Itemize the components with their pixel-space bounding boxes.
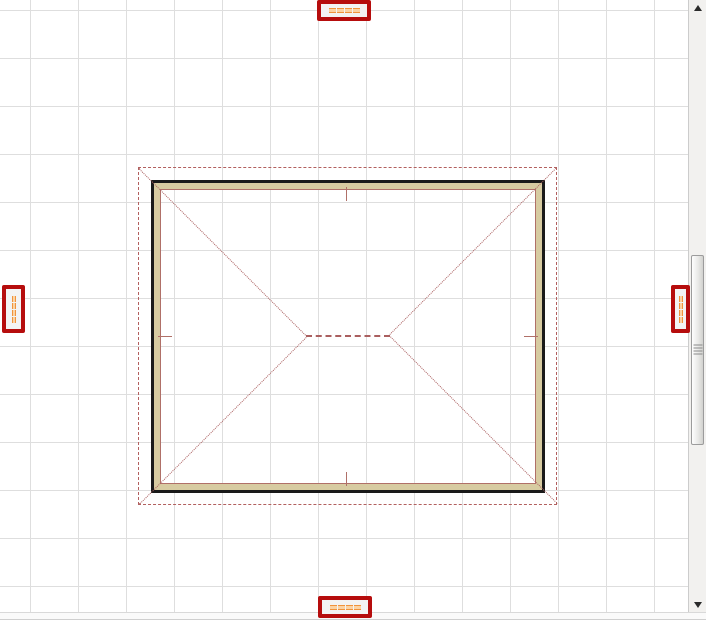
redacted-text-dash	[353, 8, 360, 13]
scrollbar-thumb[interactable]	[691, 255, 704, 445]
redacted-text-dash	[329, 8, 336, 13]
wall-center-tick-left	[158, 336, 172, 337]
scrollbar-up-arrow-icon[interactable]	[694, 5, 702, 11]
vertical-scrollbar[interactable]	[688, 0, 706, 612]
redacted-text-dash	[338, 605, 345, 610]
wall-center-tick-bottom	[346, 472, 347, 486]
redacted-text-dash	[12, 310, 16, 316]
redacted-text-dash	[679, 303, 683, 309]
redacted-text-dash	[345, 8, 352, 13]
redacted-text-dash	[337, 8, 344, 13]
dimension-label-bottom[interactable]	[318, 596, 372, 618]
redacted-text-dash	[354, 605, 361, 610]
redacted-text-dash	[346, 605, 353, 610]
redacted-text-dash	[679, 296, 683, 302]
application-window	[0, 0, 706, 620]
redacted-text-dash	[679, 317, 683, 323]
dimension-label-top[interactable]	[317, 0, 371, 21]
redacted-text-dash	[330, 605, 337, 610]
redacted-text-dash	[679, 310, 683, 316]
roof-ridge-line	[306, 335, 390, 337]
wall-center-tick-right	[524, 336, 538, 337]
scrollbar-down-arrow-icon[interactable]	[694, 602, 702, 608]
dimension-label-right[interactable]	[671, 285, 690, 333]
wall-center-tick-top	[346, 187, 347, 201]
redacted-text-dash	[12, 296, 16, 302]
redacted-text-dash	[12, 303, 16, 309]
redacted-text-dash	[12, 317, 16, 323]
dimension-label-left[interactable]	[2, 285, 25, 333]
plan-canvas[interactable]	[0, 0, 688, 612]
scrollbar-grip-icon	[693, 345, 702, 356]
